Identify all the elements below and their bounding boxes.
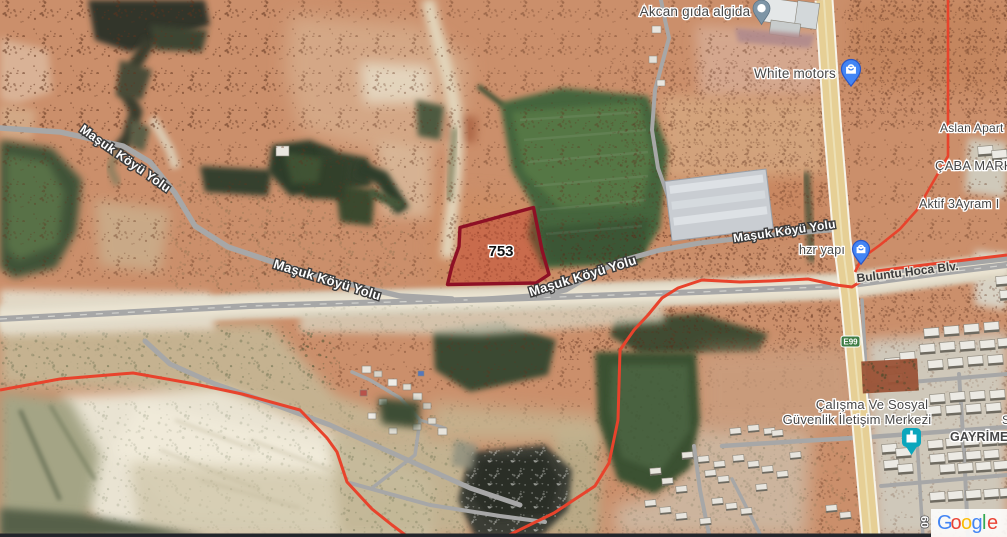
svg-text:60: 60 — [918, 516, 930, 528]
svg-text:hzr yapı: hzr yapı — [799, 243, 845, 257]
svg-text:Aktif 3Ayram I: Aktif 3Ayram I — [919, 197, 999, 211]
svg-text:Aslan Apart: Aslan Apart — [940, 121, 1004, 135]
svg-text:Akcan gıda algida: Akcan gıda algida — [640, 4, 751, 19]
svg-text:l: l — [982, 512, 986, 534]
svg-text:753: 753 — [488, 243, 513, 260]
svg-text:o: o — [951, 512, 962, 534]
svg-text:Çalışma Ve Sosyal: Çalışma Ve Sosyal — [816, 397, 929, 412]
svg-text:GAYRİME: GAYRİME — [950, 429, 1007, 444]
svg-text:White motors: White motors — [754, 66, 836, 81]
svg-text:Güvenlik İletişim Merkezi: Güvenlik İletişim Merkezi — [783, 412, 932, 427]
svg-text:g: g — [972, 512, 983, 534]
svg-text:S: S — [1002, 413, 1007, 427]
svg-text:o: o — [961, 512, 972, 534]
svg-text:e: e — [987, 512, 998, 534]
svg-text:ÇABA MARK: ÇABA MARK — [935, 158, 1007, 173]
svg-text:E99: E99 — [843, 338, 858, 347]
